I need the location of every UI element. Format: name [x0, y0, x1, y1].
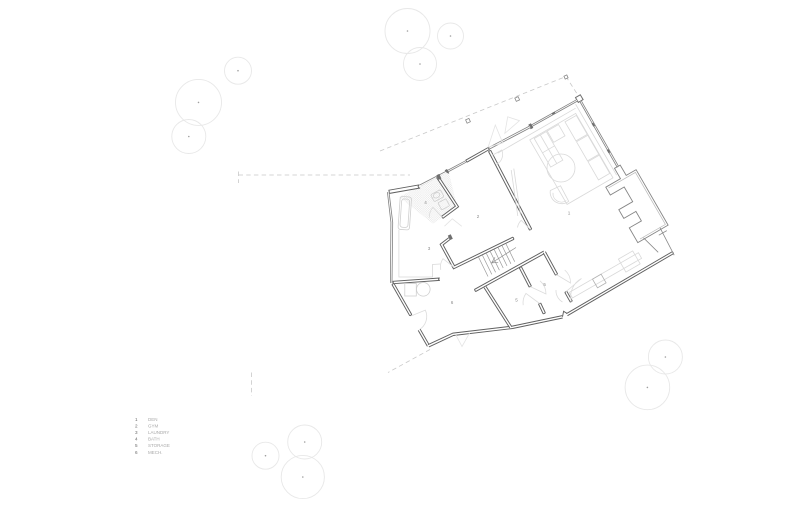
- svg-text:2: 2: [135, 423, 138, 428]
- svg-text:5: 5: [515, 297, 518, 302]
- svg-text:1: 1: [135, 417, 138, 422]
- svg-text:5: 5: [135, 443, 138, 448]
- svg-text:GYM: GYM: [148, 423, 159, 428]
- svg-text:STORAGE: STORAGE: [148, 443, 170, 448]
- svg-text:3: 3: [428, 246, 431, 251]
- svg-text:BATH: BATH: [148, 437, 160, 442]
- svg-text:6: 6: [451, 300, 454, 305]
- svg-text:6: 6: [135, 450, 138, 455]
- svg-text:MECH.: MECH.: [148, 450, 163, 455]
- svg-text:DEN: DEN: [148, 417, 158, 422]
- svg-text:1: 1: [568, 211, 571, 216]
- svg-text:3: 3: [135, 430, 138, 435]
- svg-text:5: 5: [543, 282, 546, 287]
- svg-text:2: 2: [477, 214, 480, 219]
- svg-text:4: 4: [424, 200, 427, 205]
- svg-text:LAUNDRY: LAUNDRY: [148, 430, 169, 435]
- svg-text:4: 4: [135, 437, 138, 442]
